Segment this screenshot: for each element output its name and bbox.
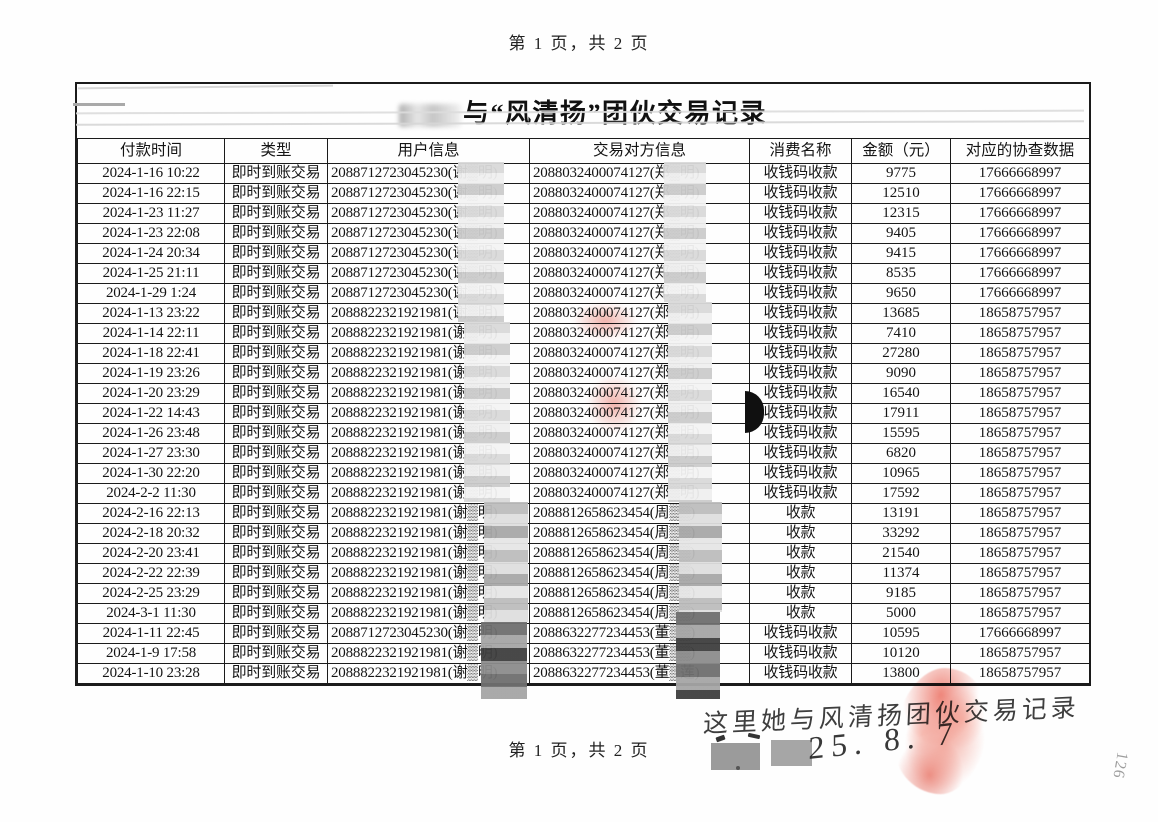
cell-payment-time: 2024-3-1 11:30 — [78, 604, 225, 624]
column-header: 付款时间 — [78, 139, 225, 164]
cell-type: 即时到账交易 — [225, 444, 328, 464]
table-row: 2024-1-24 20:34 即时到账交易 2088712723045230(… — [78, 244, 1090, 264]
cell-amount: 17592 — [852, 484, 951, 504]
cell-payment-time: 2024-1-20 23:29 — [78, 384, 225, 404]
cell-reference-number: 17666668997 — [951, 624, 1090, 644]
cell-payment-time: 2024-2-20 23:41 — [78, 544, 225, 564]
transactions-grid: 付款时间类型用户信息交易对方信息消费名称金额（元）对应的协查数据 2024-1-… — [77, 138, 1090, 684]
cell-consumption-name: 收钱码收款 — [750, 664, 852, 684]
cell-counterparty-info: 2088032400074127(郑▒明) — [530, 244, 750, 264]
cell-reference-number: 17666668997 — [951, 204, 1090, 224]
cell-amount: 9650 — [852, 284, 951, 304]
cell-payment-time: 2024-1-14 22:11 — [78, 324, 225, 344]
cell-consumption-name: 收钱码收款 — [750, 484, 852, 504]
cell-type: 即时到账交易 — [225, 224, 328, 244]
cell-type: 即时到账交易 — [225, 624, 328, 644]
cell-counterparty-info: 2088032400074127(郑▒明) — [530, 304, 750, 324]
cell-consumption-name: 收钱码收款 — [750, 424, 852, 444]
cell-consumption-name: 收钱码收款 — [750, 644, 852, 664]
cell-payment-time: 2024-1-25 21:11 — [78, 264, 225, 284]
cell-consumption-name: 收款 — [750, 564, 852, 584]
cell-counterparty-info: 2088032400074127(郑▒明) — [530, 484, 750, 504]
redaction-block — [771, 740, 812, 766]
table-row: 2024-3-1 11:30 即时到账交易 2088822321921981(谢… — [78, 604, 1090, 624]
cell-amount: 11374 — [852, 564, 951, 584]
cell-consumption-name: 收钱码收款 — [750, 624, 852, 644]
cell-consumption-name: 收钱码收款 — [750, 404, 852, 424]
cell-type: 即时到账交易 — [225, 304, 328, 324]
column-header: 交易对方信息 — [530, 139, 750, 164]
cell-counterparty-info: 2088032400074127(郑▒明) — [530, 204, 750, 224]
scan-artifact-line — [73, 103, 125, 106]
cell-amount: 17911 — [852, 404, 951, 424]
cell-counterparty-info: 2088032400074127(郑▒明) — [530, 464, 750, 484]
cell-reference-number: 17666668997 — [951, 224, 1090, 244]
cell-consumption-name: 收钱码收款 — [750, 444, 852, 464]
cell-reference-number: 17666668997 — [951, 164, 1090, 184]
red-stamp-smudge — [573, 302, 637, 340]
cell-payment-time: 2024-1-11 22:45 — [78, 624, 225, 644]
cell-consumption-name: 收款 — [750, 524, 852, 544]
cell-payment-time: 2024-1-23 11:27 — [78, 204, 225, 224]
cell-reference-number: 18658757957 — [951, 464, 1090, 484]
table-row: 2024-1-9 17:58 即时到账交易 2088822321921981(谢… — [78, 644, 1090, 664]
cell-consumption-name: 收钱码收款 — [750, 344, 852, 364]
cell-amount: 16540 — [852, 384, 951, 404]
cell-type: 即时到账交易 — [225, 344, 328, 364]
mosaic-redaction-user-names — [464, 322, 510, 502]
cell-amount: 7410 — [852, 324, 951, 344]
cell-reference-number: 17666668997 — [951, 184, 1090, 204]
cell-amount: 9090 — [852, 364, 951, 384]
cell-type: 即时到账交易 — [225, 364, 328, 384]
cell-amount: 10965 — [852, 464, 951, 484]
table-row: 2024-1-26 23:48 即时到账交易 2088822321921981(… — [78, 424, 1090, 444]
cell-consumption-name: 收钱码收款 — [750, 364, 852, 384]
cell-type: 即时到账交易 — [225, 484, 328, 504]
cell-amount: 15595 — [852, 424, 951, 444]
cell-type: 即时到账交易 — [225, 424, 328, 444]
cell-amount: 13685 — [852, 304, 951, 324]
cell-reference-number: 18658757957 — [951, 364, 1090, 384]
mosaic-redaction-user-names — [481, 622, 527, 699]
cell-consumption-name: 收钱码收款 — [750, 224, 852, 244]
cell-payment-time: 2024-1-22 14:43 — [78, 404, 225, 424]
table-row: 2024-1-29 1:24 即时到账交易 2088712723045230(谢… — [78, 284, 1090, 304]
table-row: 2024-1-27 23:30 即时到账交易 2088822321921981(… — [78, 444, 1090, 464]
cell-payment-time: 2024-1-27 23:30 — [78, 444, 225, 464]
transactions-body: 2024-1-16 10:22 即时到账交易 2088712723045230(… — [78, 164, 1090, 684]
cell-type: 即时到账交易 — [225, 204, 328, 224]
cell-amount: 12510 — [852, 184, 951, 204]
cell-type: 即时到账交易 — [225, 284, 328, 304]
cell-amount: 5000 — [852, 604, 951, 624]
cell-payment-time: 2024-1-26 23:48 — [78, 424, 225, 444]
cell-type: 即时到账交易 — [225, 244, 328, 264]
cell-amount: 10120 — [852, 644, 951, 664]
cell-reference-number: 17666668997 — [951, 244, 1090, 264]
table-row: 2024-1-23 11:27 即时到账交易 2088712723045230(… — [78, 204, 1090, 224]
cell-amount: 9405 — [852, 224, 951, 244]
cell-type: 即时到账交易 — [225, 644, 328, 664]
cell-payment-time: 2024-1-9 17:58 — [78, 644, 225, 664]
cell-consumption-name: 收钱码收款 — [750, 264, 852, 284]
cell-type: 即时到账交易 — [225, 564, 328, 584]
mosaic-redaction-counterparty-names — [676, 612, 720, 699]
table-row: 2024-1-30 22:20 即时到账交易 2088822321921981(… — [78, 464, 1090, 484]
cell-reference-number: 18658757957 — [951, 384, 1090, 404]
cell-type: 即时到账交易 — [225, 164, 328, 184]
cell-payment-time: 2024-1-18 22:41 — [78, 344, 225, 364]
cell-amount: 6820 — [852, 444, 951, 464]
cell-reference-number: 18658757957 — [951, 584, 1090, 604]
column-header: 用户信息 — [328, 139, 530, 164]
cell-consumption-name: 收钱码收款 — [750, 324, 852, 344]
cell-type: 即时到账交易 — [225, 584, 328, 604]
table-row: 2024-1-16 22:15 即时到账交易 2088712723045230(… — [78, 184, 1090, 204]
ink-mark — [736, 766, 740, 770]
cell-payment-time: 2024-1-24 20:34 — [78, 244, 225, 264]
cell-reference-number: 18658757957 — [951, 504, 1090, 524]
cell-type: 即时到账交易 — [225, 604, 328, 624]
cell-amount: 27280 — [852, 344, 951, 364]
cell-type: 即时到账交易 — [225, 524, 328, 544]
cell-payment-time: 2024-2-2 11:30 — [78, 484, 225, 504]
cell-type: 即时到账交易 — [225, 544, 328, 564]
cell-payment-time: 2024-1-13 23:22 — [78, 304, 225, 324]
table-row: 2024-2-18 20:32 即时到账交易 2088822321921981(… — [78, 524, 1090, 544]
cell-reference-number: 18658757957 — [951, 344, 1090, 364]
cell-counterparty-info: 2088032400074127(郑▒明) — [530, 224, 750, 244]
cell-amount: 12315 — [852, 204, 951, 224]
cell-type: 即时到账交易 — [225, 384, 328, 404]
cell-reference-number: 18658757957 — [951, 564, 1090, 584]
cell-counterparty-info: 2088032400074127(郑▒明) — [530, 344, 750, 364]
cell-counterparty-info: 2088032400074127(郑▒明) — [530, 164, 750, 184]
table-row: 2024-2-20 23:41 即时到账交易 2088822321921981(… — [78, 544, 1090, 564]
table-row: 2024-2-22 22:39 即时到账交易 2088822321921981(… — [78, 564, 1090, 584]
cell-consumption-name: 收款 — [750, 504, 852, 524]
cell-reference-number: 18658757957 — [951, 424, 1090, 444]
cell-type: 即时到账交易 — [225, 664, 328, 684]
cell-type: 即时到账交易 — [225, 464, 328, 484]
cell-amount: 9775 — [852, 164, 951, 184]
table-header-row: 付款时间类型用户信息交易对方信息消费名称金额（元）对应的协查数据 — [78, 139, 1090, 164]
mosaic-redaction-user-names — [458, 162, 504, 322]
cell-counterparty-info: 2088032400074127(郑▒明) — [530, 444, 750, 464]
cell-amount: 21540 — [852, 544, 951, 564]
cell-payment-time: 2024-1-19 23:26 — [78, 364, 225, 384]
cell-payment-time: 2024-2-16 22:13 — [78, 504, 225, 524]
cell-consumption-name: 收钱码收款 — [750, 164, 852, 184]
cell-amount: 33292 — [852, 524, 951, 544]
column-header: 消费名称 — [750, 139, 852, 164]
cell-payment-time: 2024-2-25 23:29 — [78, 584, 225, 604]
cell-type: 即时到账交易 — [225, 324, 328, 344]
cell-payment-time: 2024-2-22 22:39 — [78, 564, 225, 584]
page-indicator-top: 第 1 页，共 2 页 — [0, 29, 1158, 54]
cell-type: 即时到账交易 — [225, 504, 328, 524]
mosaic-redaction-counterparty-names — [679, 502, 722, 612]
table-row: 2024-1-16 10:22 即时到账交易 2088712723045230(… — [78, 164, 1090, 184]
cell-consumption-name: 收钱码收款 — [750, 284, 852, 304]
cell-reference-number: 18658757957 — [951, 544, 1090, 564]
cell-type: 即时到账交易 — [225, 184, 328, 204]
cell-consumption-name: 收钱码收款 — [750, 464, 852, 484]
cell-consumption-name: 收钱码收款 — [750, 184, 852, 204]
cell-reference-number: 18658757957 — [951, 304, 1090, 324]
cell-consumption-name: 收钱码收款 — [750, 244, 852, 264]
table-row: 2024-1-20 23:29 即时到账交易 2088822321921981(… — [78, 384, 1090, 404]
cell-amount: 9415 — [852, 244, 951, 264]
cell-amount: 8535 — [852, 264, 951, 284]
cell-payment-time: 2024-1-30 22:20 — [78, 464, 225, 484]
cell-reference-number: 18658757957 — [951, 644, 1090, 664]
cell-reference-number: 18658757957 — [951, 404, 1090, 424]
cell-consumption-name: 收钱码收款 — [750, 304, 852, 324]
red-stamp-smudge — [587, 375, 641, 433]
cell-reference-number: 18658757957 — [951, 524, 1090, 544]
cell-reference-number: 18658757957 — [951, 444, 1090, 464]
mosaic-redaction-user-names — [484, 502, 528, 622]
cell-counterparty-info: 2088032400074127(郑▒明) — [530, 184, 750, 204]
cell-payment-time: 2024-1-16 22:15 — [78, 184, 225, 204]
cell-counterparty-info: 2088032400074127(郑▒明) — [530, 264, 750, 284]
column-header: 对应的协查数据 — [951, 139, 1090, 164]
cell-consumption-name: 收款 — [750, 544, 852, 564]
scanned-document-page: 第 1 页，共 2 页 与“风清扬”团伙交易记录 付款时间类型用户信息交易对方信… — [0, 0, 1158, 822]
cell-counterparty-info: 2088032400074127(郑▒明) — [530, 284, 750, 304]
cell-consumption-name: 收钱码收款 — [750, 204, 852, 224]
cell-consumption-name: 收款 — [750, 584, 852, 604]
table-row: 2024-2-16 22:13 即时到账交易 2088822321921981(… — [78, 504, 1090, 524]
cell-reference-number: 18658757957 — [951, 324, 1090, 344]
cell-consumption-name: 收款 — [750, 604, 852, 624]
cell-amount: 9185 — [852, 584, 951, 604]
column-header: 金额（元） — [852, 139, 951, 164]
cell-payment-time: 2024-1-23 22:08 — [78, 224, 225, 244]
cell-payment-time: 2024-1-29 1:24 — [78, 284, 225, 304]
cell-amount: 10595 — [852, 624, 951, 644]
table-row: 2024-1-19 23:26 即时到账交易 2088822321921981(… — [78, 364, 1090, 384]
cell-consumption-name: 收钱码收款 — [750, 384, 852, 404]
cell-payment-time: 2024-1-16 10:22 — [78, 164, 225, 184]
table-row: 2024-1-18 22:41 即时到账交易 2088822321921981(… — [78, 344, 1090, 364]
cell-amount: 13191 — [852, 504, 951, 524]
table-row: 2024-2-25 23:29 即时到账交易 2088822321921981(… — [78, 584, 1090, 604]
mosaic-redaction-counterparty-names — [668, 302, 712, 502]
transaction-table: 与“风清扬”团伙交易记录 付款时间类型用户信息交易对方信息消费名称金额（元）对应… — [75, 82, 1091, 686]
cell-type: 即时到账交易 — [225, 404, 328, 424]
column-header: 类型 — [225, 139, 328, 164]
cell-reference-number: 18658757957 — [951, 484, 1090, 504]
table-row: 2024-1-22 14:43 即时到账交易 2088822321921981(… — [78, 404, 1090, 424]
table-row: 2024-1-23 22:08 即时到账交易 2088712723045230(… — [78, 224, 1090, 244]
cell-reference-number: 18658757957 — [951, 604, 1090, 624]
table-row: 2024-1-25 21:11 即时到账交易 2088712723045230(… — [78, 264, 1090, 284]
cell-type: 即时到账交易 — [225, 264, 328, 284]
cell-reference-number: 17666668997 — [951, 264, 1090, 284]
cell-payment-time: 2024-1-10 23:28 — [78, 664, 225, 684]
table-row: 2024-2-2 11:30 即时到账交易 2088822321921981(谢… — [78, 484, 1090, 504]
cell-reference-number: 17666668997 — [951, 284, 1090, 304]
table-row: 2024-1-11 22:45 即时到账交易 2088712723045230(… — [78, 624, 1090, 644]
mosaic-redaction-counterparty-names — [664, 162, 706, 302]
cell-counterparty-info: 2088032400074127(郑▒明) — [530, 324, 750, 344]
cell-payment-time: 2024-2-18 20:32 — [78, 524, 225, 544]
